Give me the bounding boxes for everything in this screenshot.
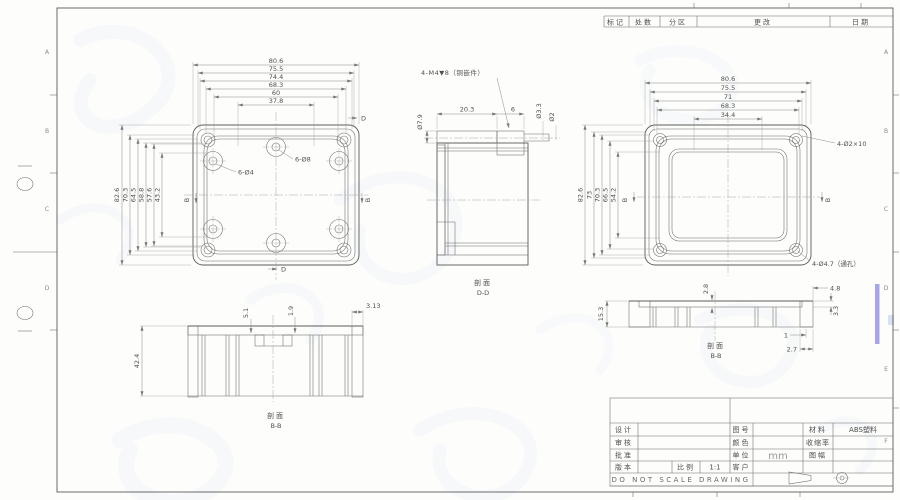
section-marker-b: B xyxy=(621,198,629,202)
dim-label: 3.3 xyxy=(832,306,840,316)
dim-label: 37.8 xyxy=(269,97,283,105)
section-b-b-lid-view: 2.8 4.8 15.3 3.3 1 2.7 剖面 B-B xyxy=(597,284,840,360)
dim-label: 42.4 xyxy=(133,354,141,368)
dim-label: 80.6 xyxy=(721,75,735,83)
titleblock-value-material: ABS塑料 xyxy=(849,425,877,434)
zone-letter: C xyxy=(884,206,888,213)
revision-col-header: 处数 xyxy=(635,18,653,27)
dim-label: 73 xyxy=(586,191,594,199)
section-name: D-D xyxy=(477,289,489,297)
dim-label: 64.5 xyxy=(130,188,138,202)
right-top-view: B B 4-Ø2×10 4-Ø4.7（通孔） 80.6 75.5 71 68.3… xyxy=(577,75,867,276)
titleblock-label-unit: 单位 xyxy=(733,451,751,460)
dim-label: 15.3 xyxy=(597,307,605,321)
section-marker-b: B xyxy=(183,198,191,202)
section-label: 剖面 xyxy=(707,341,725,350)
dim-label: 6 xyxy=(511,106,515,114)
zone-letter: A xyxy=(45,49,50,56)
revision-col-header: 标记 xyxy=(607,18,625,27)
revision-col-header: 分区 xyxy=(669,18,687,27)
titleblock-label-scale: 比例 xyxy=(677,463,695,472)
left-top-view: B B D D 6-Ø4 6-Ø8 80.6 75.5 74.4 68.3 xyxy=(113,57,372,280)
titleblock-value-scale: 1:1 xyxy=(709,464,720,472)
titleblock-label-approve: 批准 xyxy=(615,451,633,460)
dim-label: 5.1 xyxy=(242,308,250,318)
section-name: B-B xyxy=(710,352,721,360)
hole-callout: 4-Ø4.7（通孔） xyxy=(812,259,860,268)
dim-label: 70.3 xyxy=(594,188,602,202)
titleblock-label-color: 颜色 xyxy=(733,438,751,447)
zone-letter: D xyxy=(884,285,889,292)
dim-label: 20.3 xyxy=(460,106,474,114)
dim-label: 66.5 xyxy=(602,188,610,202)
dim-label: 82.6 xyxy=(113,188,121,202)
titleblock-note: DO NOT SCALE DRAWING xyxy=(611,476,750,484)
dim-label: 68.3 xyxy=(721,102,735,110)
dim-label: 70.3 xyxy=(122,188,130,202)
drawing-sheet: A B C D A B C D E F 标记 处数 分区 更改 日期 xyxy=(0,0,900,500)
dim-label: 60 xyxy=(272,89,280,97)
dim-label: 82.6 xyxy=(577,188,585,202)
dim-label: 1.9 xyxy=(287,306,295,316)
zone-letter: A xyxy=(884,49,889,56)
zone-letter: B xyxy=(884,128,888,135)
section-label: 剖面 xyxy=(474,278,492,287)
zone-letter: F xyxy=(884,438,888,445)
section-label: 剖面 xyxy=(267,411,285,420)
section-name: B-B xyxy=(270,422,281,430)
revision-col-header: 日期 xyxy=(852,19,870,27)
title-block: 设计 审核 批准 版本 图号 颜色 单位 客户 材料 收缩率 图幅 比例 1:1… xyxy=(610,398,893,486)
titleblock-label-check: 审核 xyxy=(615,438,633,447)
titleblock-value-unit: mm xyxy=(768,451,787,462)
titleblock-label-sheet: 图幅 xyxy=(809,451,827,460)
hole-callout: 6-Ø4 xyxy=(238,169,254,177)
zone-letter: D xyxy=(45,285,50,292)
dim-label: Ø3.3 xyxy=(535,103,543,118)
zone-letter: C xyxy=(45,206,49,213)
dim-label: 74.4 xyxy=(269,73,283,81)
section-marker-d: D xyxy=(361,115,366,123)
dim-label: 1 xyxy=(784,332,788,340)
dim-label: 4.8 xyxy=(830,285,840,293)
hole-callout: 4-Ø2×10 xyxy=(837,140,866,148)
dim-label: 3.13 xyxy=(366,302,380,310)
dim-label: 34.4 xyxy=(721,111,735,119)
dim-label: Ø7.9 xyxy=(416,114,424,129)
projection-symbol xyxy=(789,472,851,484)
revision-table: 标记 处数 分区 更改 日期 xyxy=(604,16,893,27)
section-b-b-box-view: 5.1 1.9 3.13 42.4 剖面 B-B xyxy=(133,302,380,430)
titleblock-label-material: 材料 xyxy=(809,425,827,434)
insert-callout: 4-M4▼8（铜嵌件） xyxy=(421,68,484,77)
titleblock-label-drawingno: 图号 xyxy=(733,426,751,434)
dim-label: 75.5 xyxy=(269,65,283,73)
titleblock-label-customer: 客户 xyxy=(733,463,751,472)
dim-label: 80.6 xyxy=(269,57,283,65)
titleblock-label-design: 设计 xyxy=(615,425,633,434)
titleblock-label-shrinkage: 收缩率 xyxy=(806,438,830,447)
dim-label: 54.2 xyxy=(610,188,618,202)
revision-col-header: 更改 xyxy=(754,18,772,27)
right-view-left-dims: 82.6 73 70.3 66.5 54.2 xyxy=(577,125,661,265)
dim-label: 71 xyxy=(724,93,732,101)
dim-label: 75.5 xyxy=(721,84,735,92)
section-marker-b: B xyxy=(364,198,372,202)
zone-letter: B xyxy=(45,128,49,135)
titleblock-label-version: 版本 xyxy=(615,463,633,472)
dim-label: 2.8 xyxy=(702,284,710,294)
section-marker-b: B xyxy=(824,198,832,202)
dim-label: 57.6 xyxy=(146,188,154,202)
section-marker-d: D xyxy=(281,266,286,274)
dim-label: Ø2 xyxy=(548,112,556,121)
dim-label: 43.2 xyxy=(154,188,162,202)
watermark xyxy=(60,32,894,500)
dim-label: 2.7 xyxy=(787,346,797,354)
zone-letter: E xyxy=(884,366,888,373)
dim-label: 68.3 xyxy=(269,81,283,89)
dim-label: 58.8 xyxy=(138,188,146,202)
hole-callout: 6-Ø8 xyxy=(295,156,311,164)
